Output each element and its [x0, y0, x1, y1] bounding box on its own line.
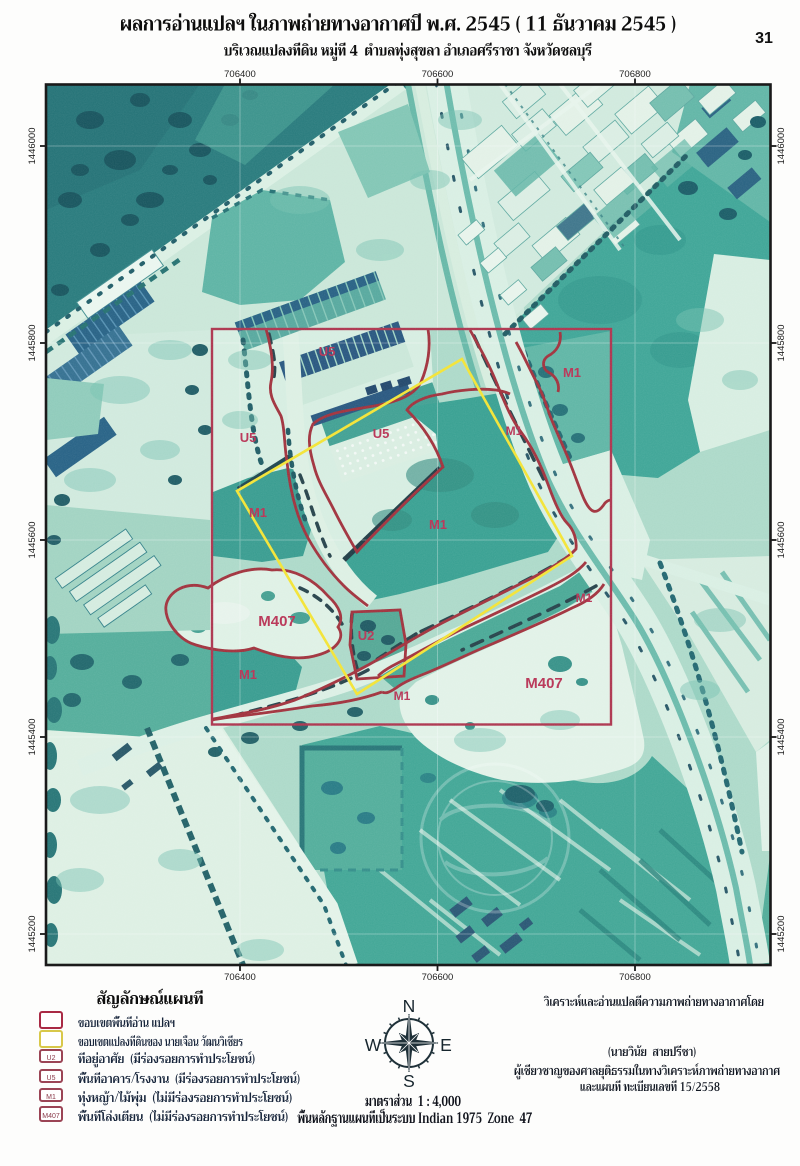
svg-text:W: W	[365, 1035, 382, 1055]
svg-text:1445200: 1445200	[27, 916, 38, 953]
svg-text:1445600: 1445600	[27, 522, 38, 559]
svg-text:1446000: 1446000	[776, 128, 787, 165]
svg-text:1445400: 1445400	[27, 719, 38, 756]
svg-text:S: S	[403, 1071, 415, 1091]
svg-text:706400: 706400	[224, 972, 256, 983]
svg-text:U2: U2	[47, 1055, 56, 1062]
svg-text:706600: 706600	[422, 972, 454, 983]
svg-text:1445800: 1445800	[27, 325, 38, 362]
svg-text:1445600: 1445600	[776, 522, 787, 559]
svg-text:706400: 706400	[224, 69, 256, 80]
svg-text:706800: 706800	[619, 69, 651, 80]
svg-text:706600: 706600	[422, 69, 454, 80]
svg-text:1445400: 1445400	[776, 719, 787, 756]
svg-text:E: E	[440, 1035, 452, 1055]
svg-text:1445200: 1445200	[776, 916, 787, 953]
svg-text:M407: M407	[42, 1113, 60, 1120]
svg-text:706800: 706800	[619, 972, 651, 983]
svg-text:N: N	[403, 996, 416, 1016]
svg-text:M1: M1	[46, 1094, 56, 1101]
svg-text:1446000: 1446000	[27, 128, 38, 165]
svg-text:31: 31	[755, 30, 773, 47]
svg-text:U5: U5	[47, 1075, 56, 1082]
svg-text:1445800: 1445800	[776, 325, 787, 362]
